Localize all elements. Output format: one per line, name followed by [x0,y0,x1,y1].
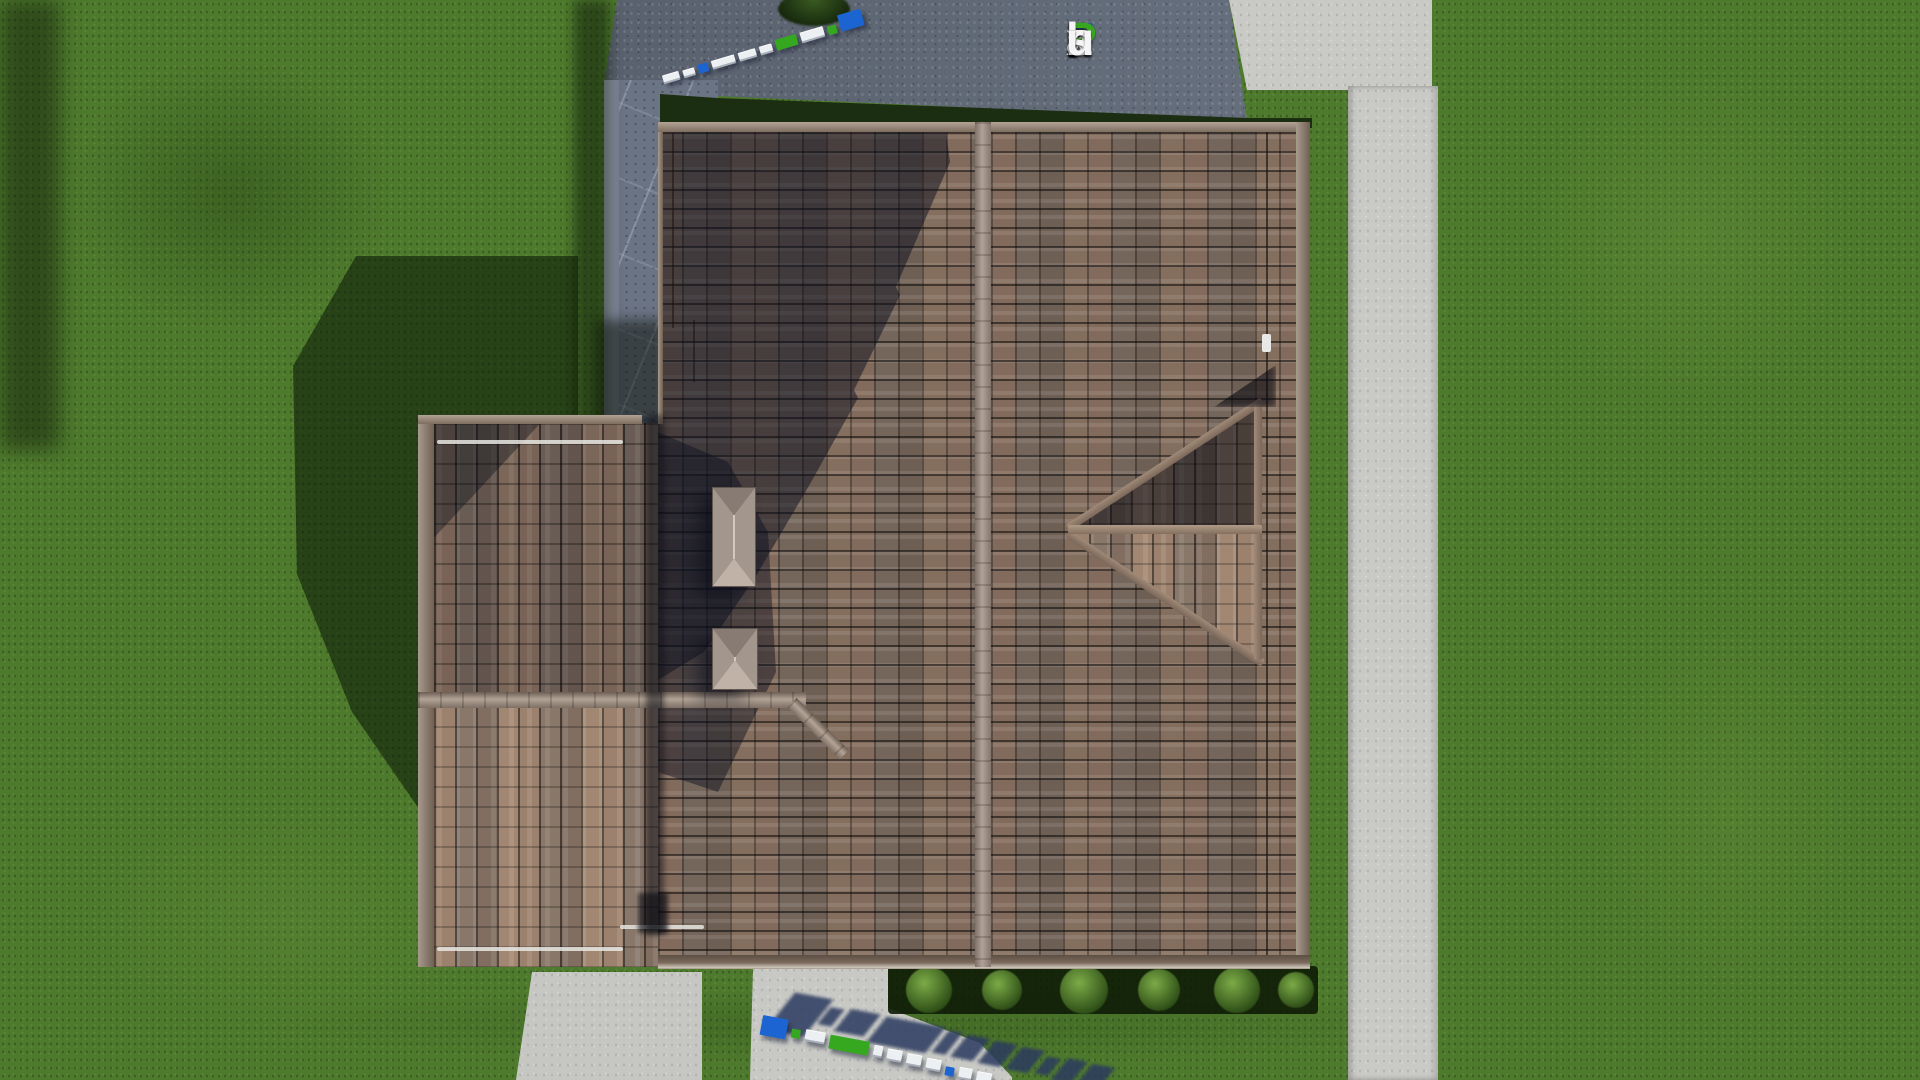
wing-roof [418,415,658,967]
snow-guard-line [672,133,674,328]
path-texture [516,970,702,1080]
watermark-letter [828,1035,870,1056]
bush [906,967,952,1013]
chimney-ridge [733,515,735,558]
wing-snow-guard-top [437,440,623,444]
aerial-roof-render: FixPlans.ru [0,0,1920,1080]
snow-guard-line [693,320,695,382]
watermark-letter [958,1067,973,1080]
watermark-letter [886,1048,903,1063]
valley-beam-mid [1068,525,1262,534]
bush [1138,969,1180,1011]
lawn-shade-left [0,0,60,450]
watermark-letter [944,1066,954,1076]
sidewalk-texture [1348,86,1438,1080]
wing-ridge-cap [418,692,806,708]
chimney-short [712,628,758,690]
watermark-letter [760,1015,789,1039]
watermark-letter [791,1029,801,1039]
brand-letter: u [1066,14,1093,64]
wing-left-bargeboard [418,415,434,967]
wing-top-bargeboard [418,415,642,424]
sidewalk-texture [1229,0,1432,90]
garden-path-left [516,970,702,1080]
pipe-white-segment [1262,334,1271,352]
roof-seam-shadow [646,415,664,935]
watermark-letter [925,1058,942,1073]
watermark-letter [975,1071,992,1080]
sidewalk-right [1348,86,1438,1080]
wing-snow-guard-bottom [437,947,623,951]
valley-triangle [1068,403,1262,660]
bush [982,970,1022,1010]
chimney-ridge [734,657,736,662]
chimney-tall [712,487,756,587]
main-roof-left-edge [658,132,663,424]
watermark-letter [804,1029,826,1044]
roof-seam-wedge [638,893,668,933]
bush [1278,972,1314,1008]
bush-row [888,966,1318,1014]
watermark-letter [906,1053,923,1068]
central-ridge-cap [975,122,991,967]
downpipe-line [1266,132,1268,955]
bush [1060,966,1108,1014]
watermark-letter [872,1045,883,1058]
sidewalk-corner [1229,0,1432,90]
bush [1214,967,1260,1013]
main-roof-right-bargeboard [1296,122,1310,967]
